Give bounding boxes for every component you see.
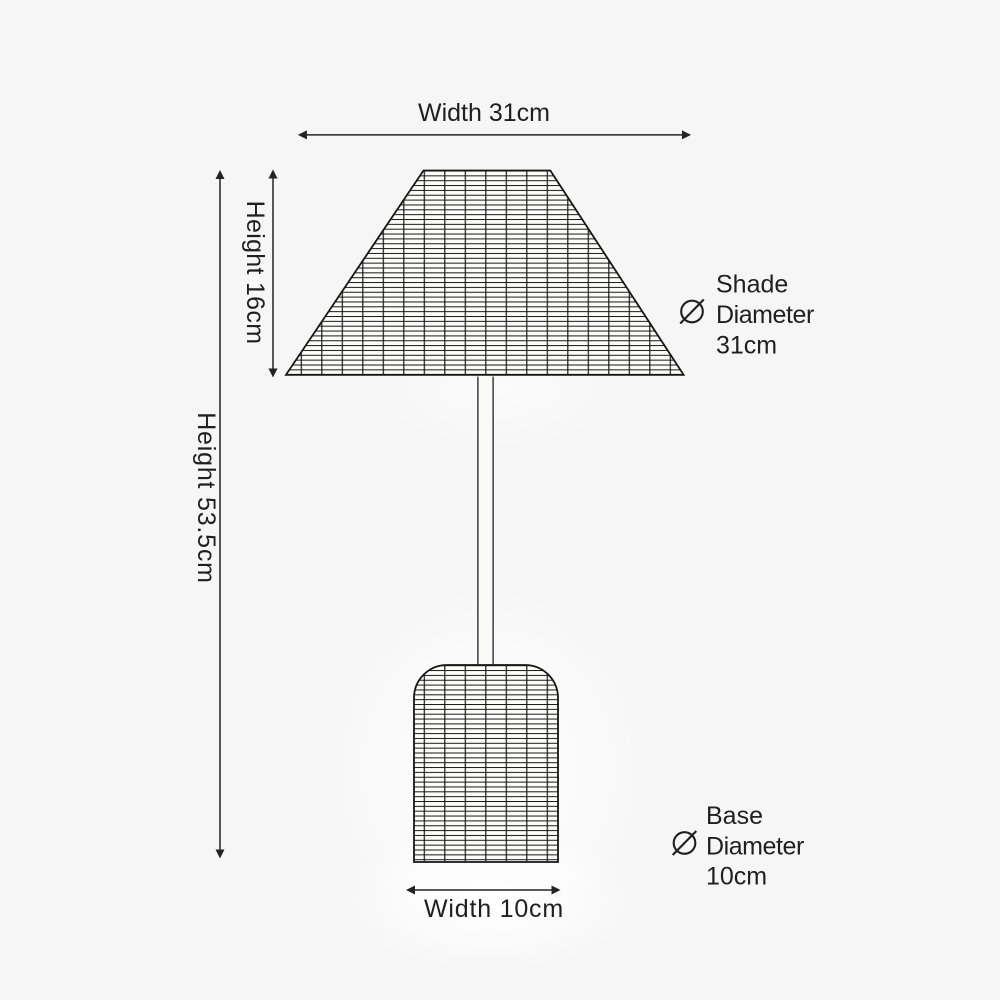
svg-text:Shade: Shade <box>716 271 788 299</box>
svg-text:10cm: 10cm <box>706 863 767 891</box>
svg-text:31cm: 31cm <box>716 332 777 360</box>
svg-text:Height 16cm: Height 16cm <box>241 201 269 345</box>
svg-text:Width 10cm: Width 10cm <box>424 895 564 923</box>
svg-text:Diameter: Diameter <box>716 301 814 329</box>
svg-text:Height 53.5cm: Height 53.5cm <box>192 412 220 584</box>
svg-text:Width 31cm: Width 31cm <box>418 99 550 127</box>
svg-text:Diameter: Diameter <box>706 833 804 861</box>
svg-text:Base: Base <box>706 802 763 830</box>
